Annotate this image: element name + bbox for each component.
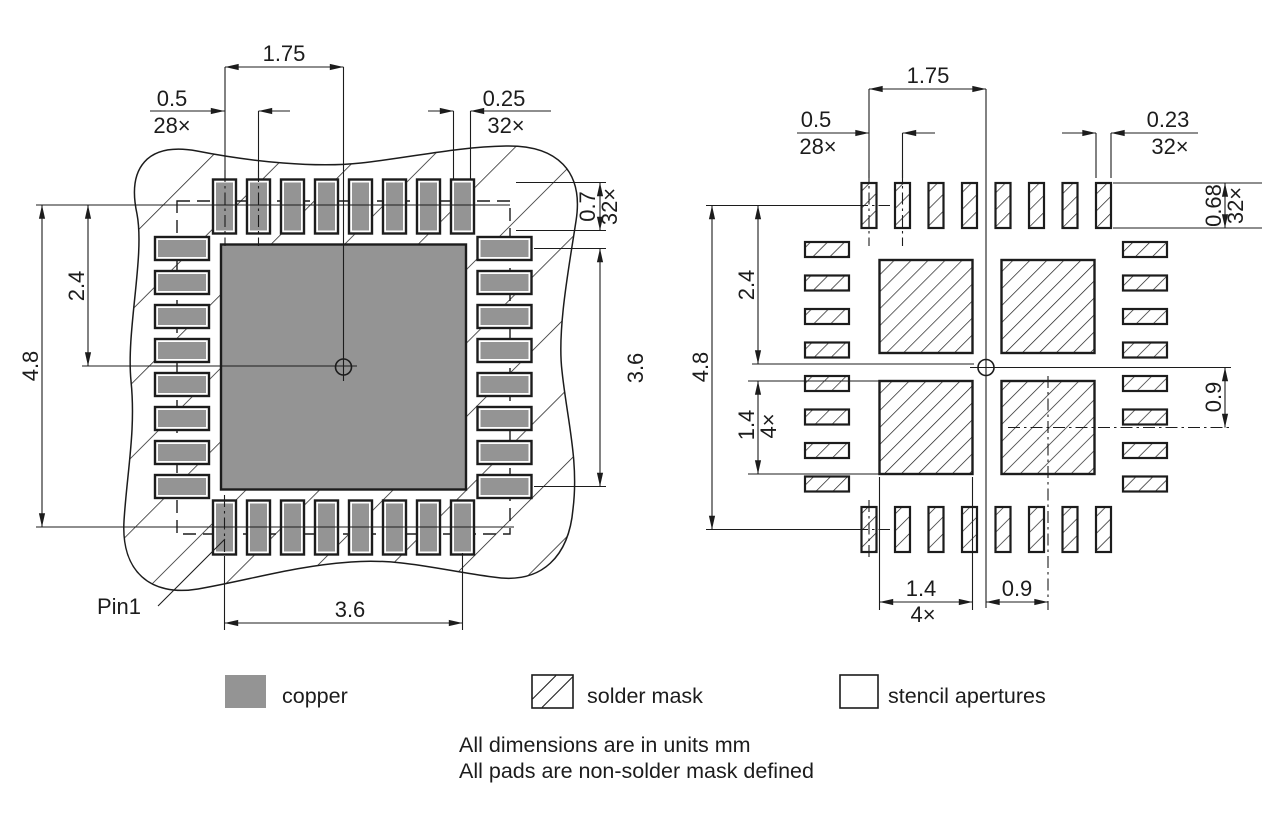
copper-pad <box>420 183 437 231</box>
dim-overall-height-label: 4.8 <box>18 351 43 382</box>
copper-pad <box>481 410 529 427</box>
legend-item-copper: copper <box>225 675 348 708</box>
dim-aperture-width-count-label: 32× <box>1151 134 1188 159</box>
copper-pad <box>481 376 529 393</box>
copper-pad <box>481 342 529 359</box>
copper-pad <box>158 274 206 291</box>
dim-center-to-top-label: 2.4 <box>734 270 759 301</box>
stencil-aperture <box>1029 507 1044 552</box>
dim-aperture-width-label: 0.23 <box>1147 107 1190 132</box>
legend: copper solder mask stencil apertures <box>225 675 1046 708</box>
dim-row-span-horizontal-label: 3.6 <box>335 597 366 622</box>
copper-pad <box>352 183 369 231</box>
copper-pad <box>454 183 471 231</box>
copper-pad <box>481 240 529 257</box>
stencil-aperture <box>1029 183 1044 228</box>
pcb-land-pattern-diagram: 1.75 0.5 28× 0.25 32× 0.7 32× 3.6 2.4 4.… <box>0 0 1280 821</box>
stencil-aperture <box>805 242 849 257</box>
stencil-aperture <box>1123 376 1167 391</box>
stencil-aperture <box>805 443 849 458</box>
solder-mask-swatch <box>532 675 573 708</box>
copper-pad <box>158 444 206 461</box>
dim-center-offset-v-label: 0.9 <box>1201 382 1226 413</box>
dim-center-to-top-label: 2.4 <box>64 271 89 302</box>
copper-pad <box>158 240 206 257</box>
dim-pad-width-label: 0.25 <box>483 86 526 111</box>
pcb-footprint-drawing-page: 1.75 0.5 28× 0.25 32× 0.7 32× 3.6 2.4 4.… <box>0 0 1280 821</box>
copper-pad <box>158 410 206 427</box>
stencil-aperture <box>962 507 977 552</box>
dim-pitch-label: 0.5 <box>801 107 832 132</box>
copper-pad <box>481 478 529 495</box>
dim-aperture-length-count-label: 32× <box>1223 187 1248 224</box>
dim-pitch-count-label: 28× <box>153 113 190 138</box>
center-aperture-top-right <box>1002 260 1095 353</box>
note-nsmd: All pads are non-solder mask defined <box>459 759 814 783</box>
dim-pitch-span-label: 1.75 <box>907 63 950 88</box>
copper-pad <box>158 342 206 359</box>
dim-pitch-label: 0.5 <box>157 86 188 111</box>
stencil-aperture <box>1123 443 1167 458</box>
stencil-aperture <box>805 410 849 425</box>
copper-pad <box>386 183 403 231</box>
stencil-aperture <box>895 507 910 552</box>
stencil-aperture <box>1123 410 1167 425</box>
stencil-aperture <box>962 183 977 228</box>
legend-item-solder-mask: solder mask <box>532 675 703 708</box>
notes: All dimensions are in units mm All pads … <box>459 733 814 783</box>
stencil-aperture <box>996 183 1011 228</box>
stencil-aperture <box>805 376 849 391</box>
copper-pad <box>481 274 529 291</box>
legend-solder-mask-label: solder mask <box>587 684 703 708</box>
stencil-aperture <box>805 477 849 492</box>
left-view: 1.75 0.5 28× 0.25 32× 0.7 32× 3.6 2.4 4.… <box>18 41 648 630</box>
copper-pad <box>481 444 529 461</box>
stencil-aperture <box>805 309 849 324</box>
stencil-aperture <box>805 343 849 358</box>
center-aperture-bottom-left <box>880 381 973 474</box>
dim-center-aperture-h-label: 1.4 <box>906 576 937 601</box>
stencil-aperture <box>929 183 944 228</box>
right-view: 1.75 0.5 28× 0.23 32× 0.68 32× 4.8 2.4 1… <box>688 63 1262 627</box>
legend-stencil-apertures-label: stencil apertures <box>888 684 1046 708</box>
stencil-aperture <box>1123 343 1167 358</box>
copper-pad <box>284 183 301 231</box>
stencil-aperture <box>1123 242 1167 257</box>
dim-pad-width-count-label: 32× <box>487 113 524 138</box>
stencil-aperture <box>1123 276 1167 291</box>
note-units: All dimensions are in units mm <box>459 733 751 757</box>
copper-swatch <box>225 675 266 708</box>
stencil-aperture <box>1123 309 1167 324</box>
dim-pad-length-count-label: 32× <box>597 188 622 225</box>
dim-center-aperture-h-count-label: 4× <box>910 602 935 627</box>
dim-pitch-span-label: 1.75 <box>263 41 306 66</box>
dim-center-aperture-v-count-label: 4× <box>756 413 781 438</box>
stencil-apertures-swatch <box>840 675 878 708</box>
dim-center-offset-h-label: 0.9 <box>1002 576 1033 601</box>
legend-item-stencil-apertures: stencil apertures <box>840 675 1046 708</box>
pin1-label: Pin1 <box>97 594 141 619</box>
copper-pad <box>481 308 529 325</box>
stencil-aperture <box>929 507 944 552</box>
stencil-aperture <box>1096 507 1111 552</box>
stencil-aperture <box>1063 507 1078 552</box>
copper-pad <box>158 478 206 495</box>
stencil-aperture <box>1096 183 1111 228</box>
dim-row-span-vertical-label: 3.6 <box>623 353 648 384</box>
center-aperture-top-left <box>880 260 973 353</box>
stencil-aperture <box>1123 477 1167 492</box>
copper-pad <box>318 183 335 231</box>
copper-pad <box>158 308 206 325</box>
dim-overall-height-label: 4.8 <box>688 352 713 383</box>
legend-copper-label: copper <box>282 684 348 708</box>
stencil-aperture <box>805 276 849 291</box>
stencil-aperture <box>1063 183 1078 228</box>
copper-pad <box>158 376 206 393</box>
stencil-aperture <box>996 507 1011 552</box>
dim-pitch-count-label: 28× <box>799 134 836 159</box>
